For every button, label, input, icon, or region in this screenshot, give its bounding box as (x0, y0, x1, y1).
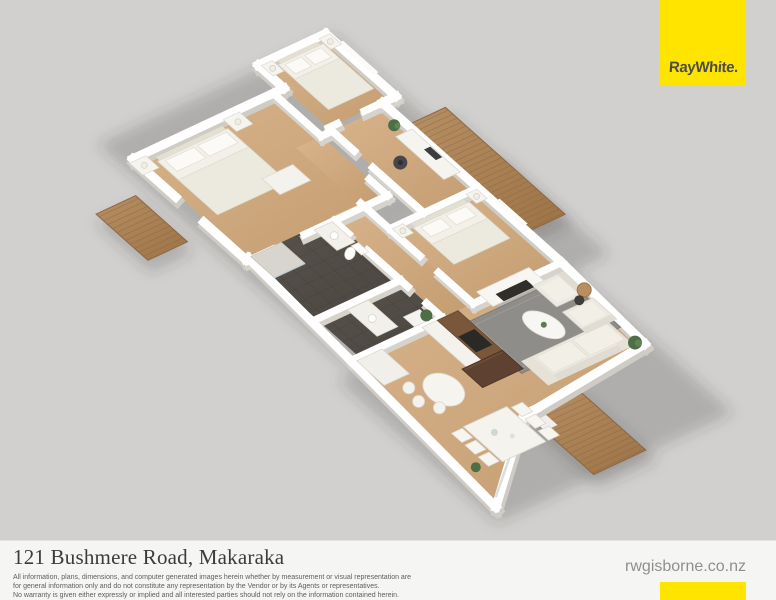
raywhite-logo: RayWhite. (660, 0, 746, 85)
living-plant-west (420, 309, 432, 321)
office-plant-top (394, 123, 400, 129)
corner-plant-top (635, 340, 642, 347)
footer-bar: 121 Bushmere Road, Makaraka All informat… (0, 540, 776, 600)
bedroom2-nightstand-2-lamp (327, 39, 333, 45)
disclaimer-line-1: All information, plans, dimensions, and … (13, 573, 411, 582)
ensuite-sink (368, 315, 376, 323)
footer-info: 121 Bushmere Road, Makaraka All informat… (0, 541, 411, 600)
bedroom3-nightstand-1-lamp (400, 228, 406, 234)
master-nightstand-2-lamp (235, 119, 241, 125)
bedroom3-nightstand-2-lamp (474, 193, 480, 199)
property-address: 121 Bushmere Road, Makaraka (13, 545, 411, 570)
disclaimer-line-2: for general information only and do not … (13, 582, 411, 591)
office-chair-hub (398, 160, 403, 165)
coffee-table-plant (541, 322, 547, 328)
master-nightstand-1-lamp (141, 162, 147, 168)
side-table-round (577, 283, 591, 297)
breakfast-chair (413, 395, 425, 407)
agency-website: rwgisborne.co.nz (625, 558, 746, 576)
dining-plant (471, 462, 481, 472)
vanity-sink (330, 232, 338, 240)
floor-plan-canvas: RayWhite. (0, 0, 776, 600)
side-table-small (574, 295, 584, 305)
disclaimer-line-3: No warranty is given either expressly or… (13, 591, 411, 600)
bedroom2-nightstand-1-lamp (270, 65, 276, 71)
table-decor (491, 429, 498, 436)
footer-brand-area: rwgisborne.co.nz (576, 541, 776, 600)
breakfast-chair (403, 382, 415, 394)
flyer-page: RayWhite. 121 Bushmere Road, Makaraka Al… (0, 0, 776, 600)
brand-yellow-tab (660, 582, 746, 600)
breakfast-chair (433, 402, 445, 414)
table-decor (510, 434, 515, 439)
floor-plan-3d (0, 0, 776, 600)
raywhite-logo-text: RayWhite. (668, 59, 738, 76)
